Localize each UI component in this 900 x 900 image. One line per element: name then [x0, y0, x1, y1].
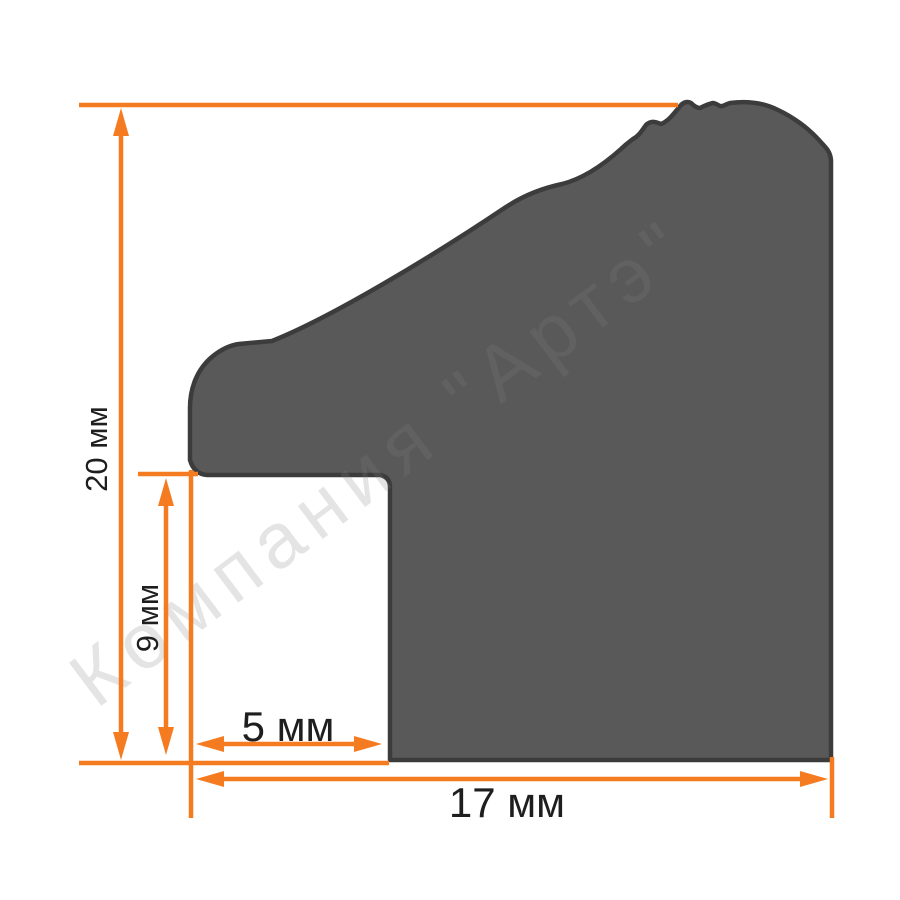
dimension-label-rabbet-width: 5 мм [188, 703, 388, 751]
dimension-label-overall-height: 20 мм [79, 369, 115, 529]
dimension-label-rabbet-depth: 9 мм [130, 538, 166, 698]
profile-shape-layer [0, 0, 900, 900]
dimension-label-overall-width: 17 мм [407, 779, 607, 827]
moulding-profile-shape [190, 102, 831, 760]
moulding-profile-diagram: Компания "Артэ" [0, 0, 900, 900]
